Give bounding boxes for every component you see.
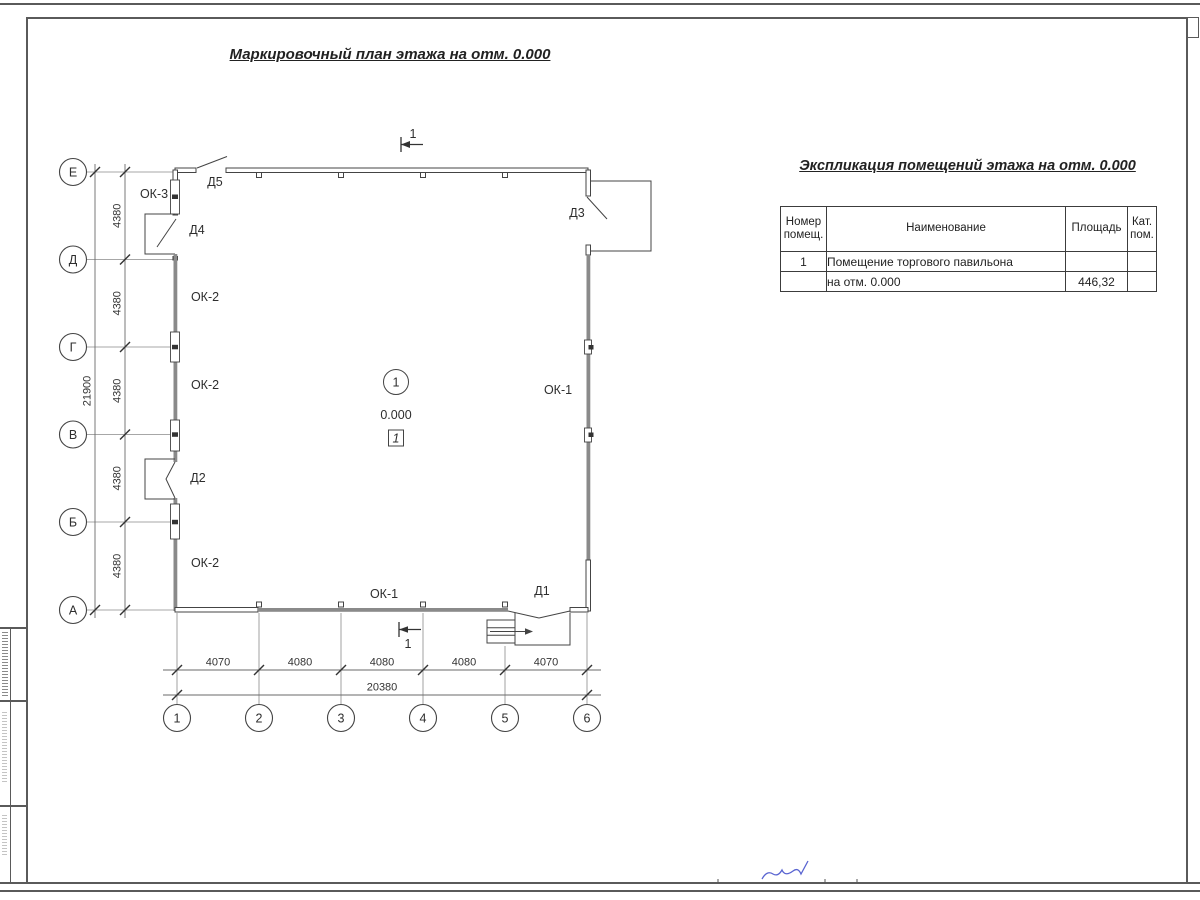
cell-room-name: на отм. 0.000 bbox=[827, 272, 1066, 292]
signature-area bbox=[700, 855, 920, 897]
row-dimension-ticks bbox=[90, 167, 130, 615]
dim-value: 4080 bbox=[288, 657, 312, 669]
bottom-wall-glazed-band bbox=[258, 608, 508, 612]
dim-value: 4070 bbox=[534, 657, 558, 669]
header-room-number: Номер помещ. bbox=[781, 207, 827, 252]
right-wall-upper bbox=[586, 170, 591, 196]
axis-label: 2 bbox=[256, 712, 263, 726]
door-label-d5: Д5 bbox=[207, 175, 222, 189]
top-wall bbox=[175, 168, 588, 173]
right-wall-glazed-band bbox=[587, 255, 591, 560]
window-label-ok1: ОК-1 bbox=[544, 383, 572, 397]
dim-value: 4380 bbox=[112, 379, 124, 403]
right-wall-stub bbox=[586, 245, 591, 255]
elevation-mark: 0.000 bbox=[380, 408, 411, 422]
section-number: 1 bbox=[410, 127, 417, 141]
window-label-ok3: ОК-3 bbox=[140, 187, 168, 201]
axis-label: Е bbox=[69, 166, 77, 180]
door-label-d3: Д3 bbox=[569, 206, 584, 220]
bottom-wall-right bbox=[570, 608, 588, 613]
section-mark-bottom: 1 bbox=[399, 622, 421, 651]
dim-value: 4070 bbox=[206, 657, 230, 669]
door-d4-leaf bbox=[157, 219, 176, 247]
top-wall-column-marks bbox=[257, 173, 508, 178]
floor-plan-drawing: 4380 4380 4380 4380 4380 21900 Е Д Г В Б… bbox=[0, 0, 760, 790]
axis-label: А bbox=[69, 604, 78, 618]
stamp-strip-divider bbox=[0, 805, 27, 807]
dim-value: 4380 bbox=[112, 466, 124, 490]
cell-room-area: 446,32 bbox=[1066, 272, 1128, 292]
window-label-ok1: ОК-1 bbox=[370, 587, 398, 601]
dim-value: 4380 bbox=[112, 204, 124, 228]
axis-label: 5 bbox=[502, 712, 509, 726]
row-axis-labels: Е Д Г В Б А bbox=[69, 166, 78, 618]
axis-label: 1 bbox=[174, 712, 181, 726]
header-category: Кат. пом. bbox=[1128, 207, 1157, 252]
axis-label: Б bbox=[69, 516, 77, 530]
cell-room-category bbox=[1128, 272, 1157, 292]
stamp-micro-text bbox=[2, 815, 7, 855]
room-tag: 1 bbox=[393, 432, 400, 446]
window-label-ok2: ОК-2 bbox=[191, 290, 219, 304]
col-axis-labels: 1 2 3 4 5 6 bbox=[174, 712, 591, 726]
dim-value: 4380 bbox=[112, 291, 124, 315]
dim-value: 4080 bbox=[370, 657, 394, 669]
window-ok3-mullion bbox=[172, 195, 178, 200]
door-d1-leaf bbox=[508, 611, 570, 618]
table-row: 1 Помещение торгового павильона bbox=[781, 252, 1157, 272]
dim-total-value: 20380 bbox=[367, 682, 398, 694]
table-row: на отм. 0.000 446,32 bbox=[781, 272, 1157, 292]
sheet-outer-bottom-line bbox=[0, 890, 1200, 892]
door-label-d4: Д4 bbox=[189, 223, 204, 237]
cell-room-area bbox=[1066, 252, 1128, 272]
dim-value: 4380 bbox=[112, 554, 124, 578]
header-name: Наименование bbox=[827, 207, 1066, 252]
dim-value: 4080 bbox=[452, 657, 476, 669]
frame-tick-marks bbox=[718, 879, 857, 883]
dim-total-value: 21900 bbox=[82, 376, 94, 407]
axis-label: 4 bbox=[420, 712, 427, 726]
frame-bottom-line bbox=[0, 882, 1200, 884]
room-schedule-table: Номер помещ. Наименование Площадь Кат. п… bbox=[780, 206, 1157, 292]
window-label-ok2: ОК-2 bbox=[191, 556, 219, 570]
cell-room-number: 1 bbox=[781, 252, 827, 272]
cell-room-number bbox=[781, 272, 827, 292]
axis-label: Д bbox=[69, 253, 78, 267]
cell-room-name: Помещение торгового павильона bbox=[827, 252, 1066, 272]
axis-label: 3 bbox=[338, 712, 345, 726]
door-d2-porch bbox=[145, 459, 175, 499]
table-header-row: Номер помещ. Наименование Площадь Кат. п… bbox=[781, 207, 1157, 252]
bottom-wall-column-marks bbox=[257, 602, 508, 607]
col-axis-bubbles bbox=[164, 705, 601, 732]
door-label-d2: Д2 bbox=[190, 471, 205, 485]
door-d3-vestibule bbox=[590, 181, 651, 251]
header-area: Площадь bbox=[1066, 207, 1128, 252]
right-wall-lower bbox=[586, 560, 591, 611]
section-mark-top: 1 bbox=[401, 127, 423, 152]
door-d4-porch bbox=[145, 214, 175, 254]
room-number: 1 bbox=[393, 376, 400, 390]
door-label-d1: Д1 bbox=[534, 584, 549, 598]
door-d3-leaf bbox=[587, 197, 607, 219]
signature-squiggle bbox=[762, 861, 808, 879]
frame-right-line bbox=[1186, 17, 1188, 882]
corner-cell bbox=[1186, 17, 1199, 38]
axis-label: 6 bbox=[584, 712, 591, 726]
row-axis-leader-lines bbox=[87, 172, 175, 610]
window-label-ok2: ОК-2 bbox=[191, 378, 219, 392]
section-number: 1 bbox=[405, 637, 412, 651]
axis-label: Г bbox=[70, 341, 77, 355]
door-d1-porch bbox=[515, 613, 570, 645]
bottom-wall-left bbox=[175, 608, 258, 613]
door-d5-leaf bbox=[197, 157, 227, 169]
axis-label: В bbox=[69, 428, 77, 442]
cell-room-category bbox=[1128, 252, 1157, 272]
schedule-title: Экспликация помещений этажа на отм. 0.00… bbox=[770, 158, 1165, 174]
